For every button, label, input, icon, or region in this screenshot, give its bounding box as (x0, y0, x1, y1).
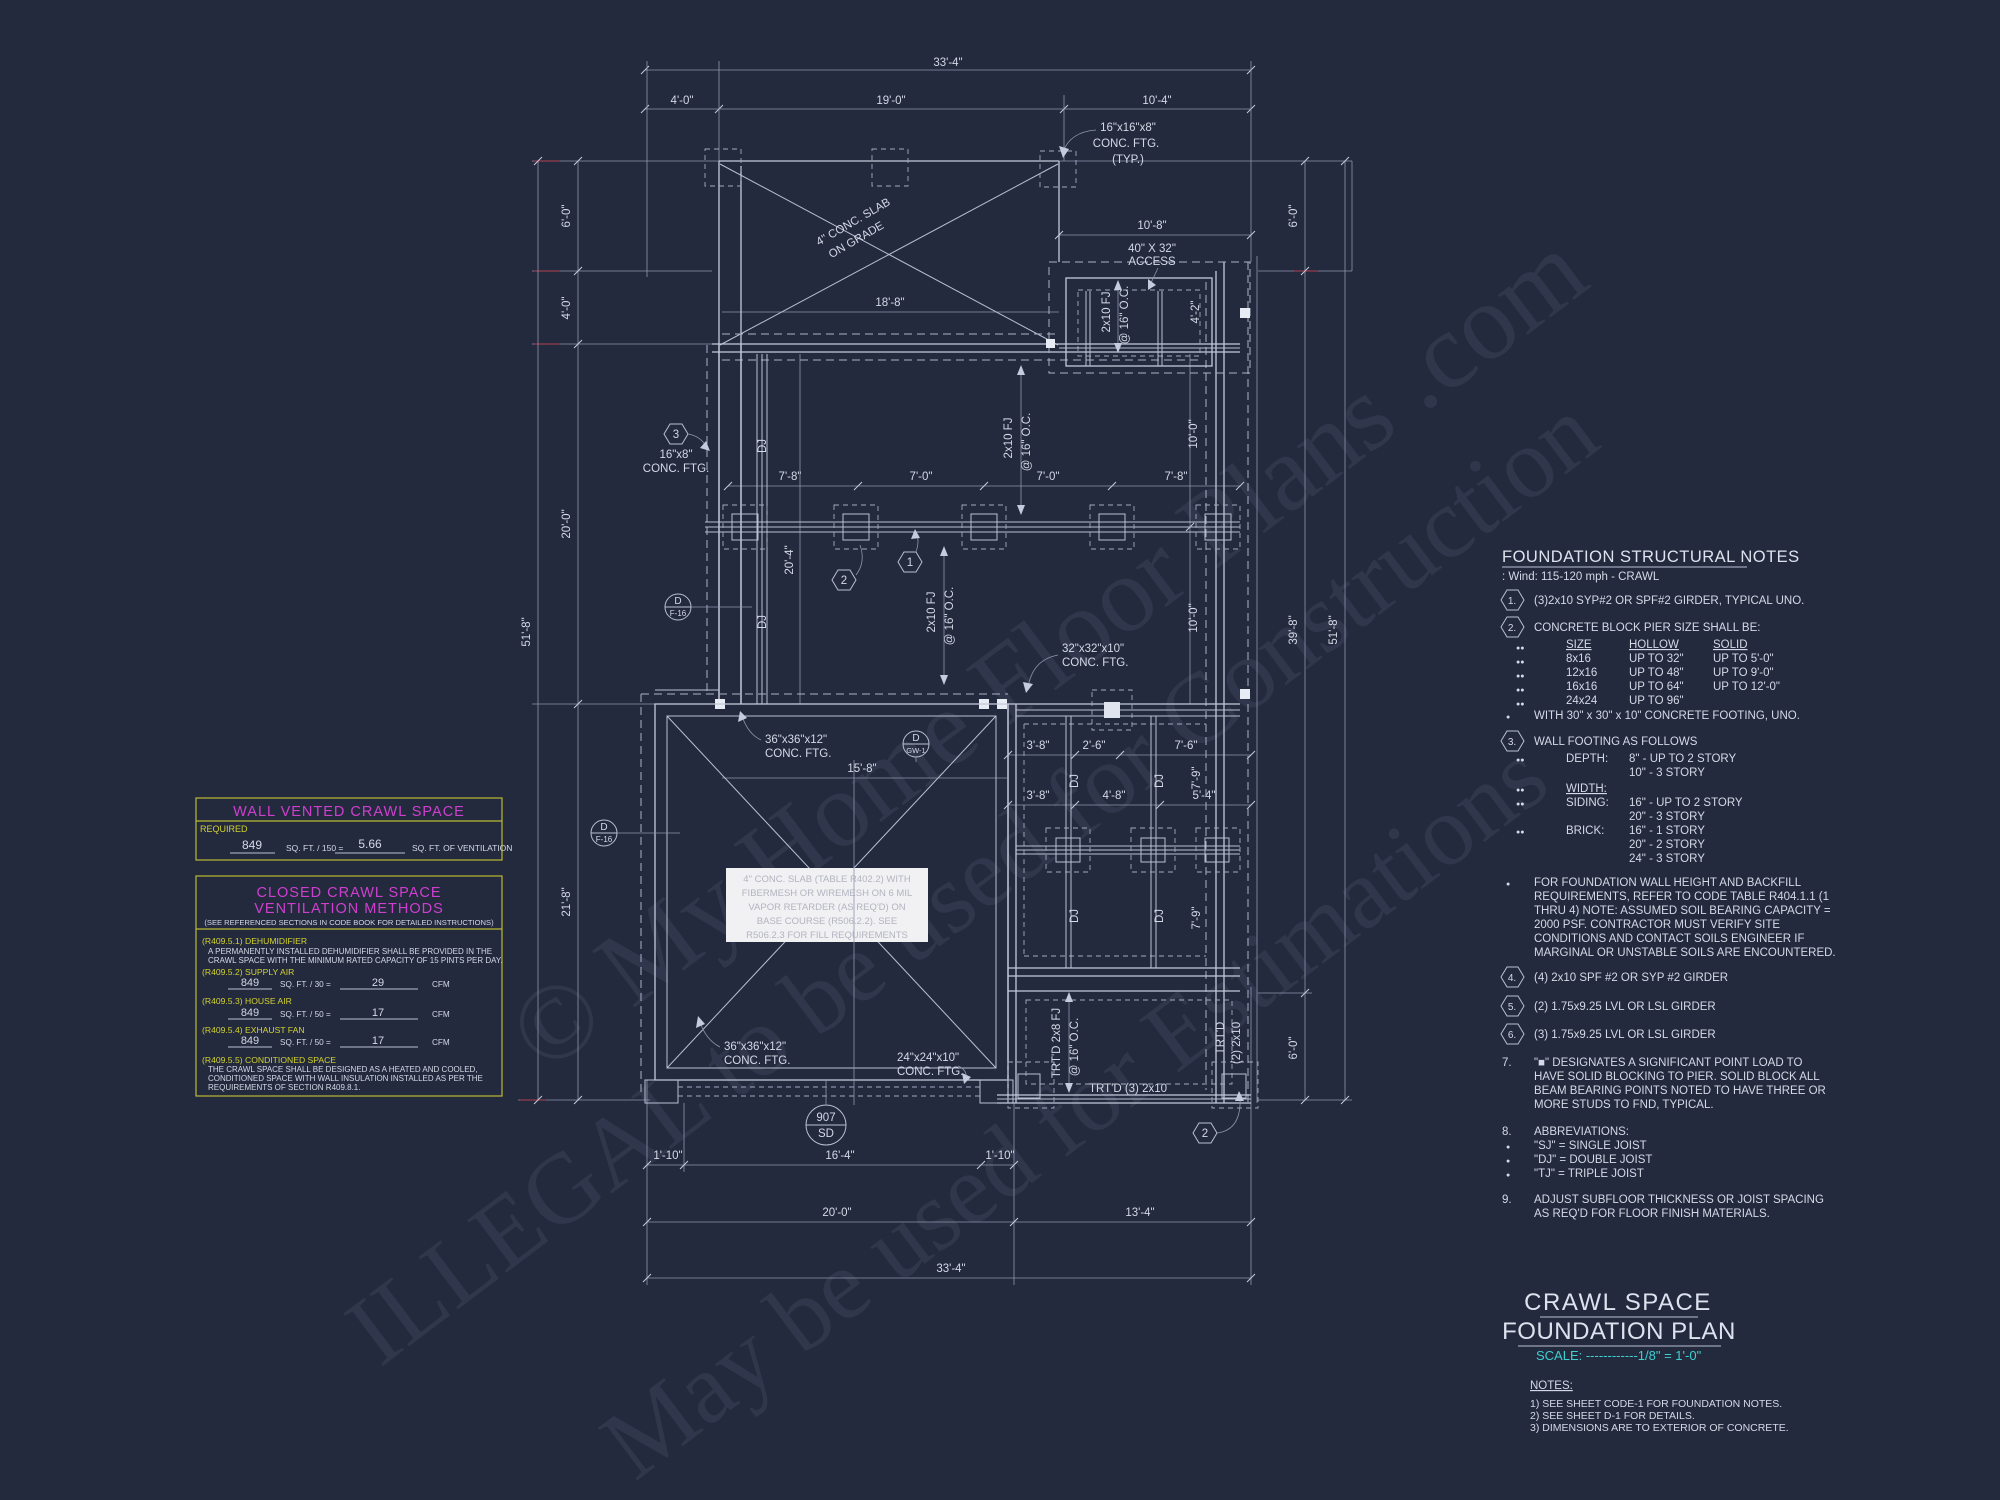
svg-text:THRU 4) NOTE: ASSUMED SOIL BEA: THRU 4) NOTE: ASSUMED SOIL BEARING CAPAC… (1534, 905, 1831, 917)
svg-text:●●: ●● (1516, 687, 1524, 694)
svg-text:15'-8": 15'-8" (847, 763, 876, 775)
svg-text:7'-8": 7'-8" (1165, 471, 1188, 483)
svg-text:TRT'D 2x8 FJ: TRT'D 2x8 FJ (1051, 1008, 1063, 1078)
svg-text:FIBERMESH OR WIREMESH ON 6 MIL: FIBERMESH OR WIREMESH ON 6 MIL (742, 888, 913, 899)
svg-text:TRT'D: TRT'D (1215, 1022, 1227, 1055)
svg-text:●●: ●● (1516, 659, 1524, 666)
svg-text:18'-8": 18'-8" (875, 297, 904, 309)
svg-text:3) DIMENSIONS ARE TO EXTERIOR: 3) DIMENSIONS ARE TO EXTERIOR OF CONCRET… (1530, 1422, 1789, 1434)
svg-text:●●: ●● (1516, 801, 1524, 808)
svg-text:10'-0": 10'-0" (1188, 419, 1200, 448)
svg-text:●●: ●● (1516, 787, 1524, 794)
svg-text:24"x24"x10": 24"x24"x10" (897, 1052, 959, 1064)
svg-text:2: 2 (841, 575, 847, 587)
svg-text:●: ● (1506, 1158, 1510, 1165)
svg-text:@ 16" O.C.: @ 16" O.C. (1069, 1018, 1081, 1077)
svg-text:●●: ●● (1516, 829, 1524, 836)
svg-text:●: ● (1506, 714, 1510, 721)
svg-text:REQUIRED: REQUIRED (200, 824, 248, 834)
svg-text:DJ: DJ (757, 439, 769, 453)
svg-text:HAVE SOLID BLOCKING TO PIER.: HAVE SOLID BLOCKING TO PIER. SOLID BLOCK… (1534, 1071, 1820, 1083)
svg-text:51'-8": 51'-8" (521, 617, 533, 646)
svg-text:36"x36"x12": 36"x36"x12" (724, 1041, 786, 1053)
svg-text:51'-8": 51'-8" (1328, 615, 1340, 644)
svg-text:●●: ●● (1516, 701, 1524, 708)
svg-text:ADJUST SUBFLOOR THICKNESS OR J: ADJUST SUBFLOOR THICKNESS OR JOIST SPACI… (1534, 1194, 1824, 1206)
svg-text:SQ. FT. / 30 =: SQ. FT. / 30 = (280, 980, 331, 989)
svg-text:5.66: 5.66 (358, 837, 382, 851)
svg-text:SQ. FT. OF VENTILATION: SQ. FT. OF VENTILATION (412, 843, 512, 853)
svg-text:16'-4": 16'-4" (825, 1150, 854, 1162)
svg-text:: Wind: 115-120 mph - CRAWL: : Wind: 115-120 mph - CRAWL (1502, 571, 1660, 583)
svg-text:CFM: CFM (432, 980, 450, 989)
svg-text:GW-1: GW-1 (906, 746, 925, 755)
svg-text:CONCRETE BLOCK PIER SIZE SHALL: CONCRETE BLOCK PIER SIZE SHALL BE: (1534, 622, 1760, 634)
svg-text:FOR FOUNDATION WALL HEIGHT AND: FOR FOUNDATION WALL HEIGHT AND BACKFILL (1534, 877, 1802, 889)
svg-text:16"x8": 16"x8" (659, 449, 692, 461)
svg-text:29: 29 (372, 977, 384, 989)
svg-text:FOUNDATION STRUCTURAL NOTES: FOUNDATION STRUCTURAL NOTES (1502, 548, 1800, 566)
svg-text:2: 2 (1202, 1128, 1208, 1140)
svg-text:AS REQ'D FOR FLOOR FINISH MATE: AS REQ'D FOR FLOOR FINISH MATERIALS. (1534, 1208, 1770, 1220)
svg-text:CFM: CFM (432, 1038, 450, 1047)
svg-text:WITH 30" x 30" x 10" CONCRETE: WITH 30" x 30" x 10" CONCRETE FOOTING, U… (1534, 710, 1800, 722)
svg-text:UP TO 32": UP TO 32" (1629, 653, 1684, 665)
svg-text:16"x16"x8": 16"x16"x8" (1100, 122, 1156, 134)
svg-text:UP TO 64": UP TO 64" (1629, 681, 1684, 693)
svg-text:WALL VENTED CRAWL SPACE: WALL VENTED CRAWL SPACE (233, 804, 465, 820)
svg-text:6'-0": 6'-0" (1288, 1037, 1300, 1060)
svg-text:849: 849 (241, 1007, 259, 1019)
svg-text:BRICK:: BRICK: (1566, 825, 1604, 837)
svg-text:3'-8": 3'-8" (1027, 740, 1050, 752)
svg-text:3.: 3. (1508, 737, 1516, 748)
svg-text:●: ● (1506, 881, 1510, 888)
svg-text:MARGINAL OR UNSTABLE SOILS ARE: MARGINAL OR UNSTABLE SOILS ARE ENCOUNTER… (1534, 947, 1836, 959)
svg-text:CFM: CFM (432, 1010, 450, 1019)
svg-text:(R409.5.4) EXHAUST FAN: (R409.5.4) EXHAUST FAN (202, 1025, 305, 1035)
svg-text:UP TO 48": UP TO 48" (1629, 667, 1684, 679)
svg-text:19'-0": 19'-0" (876, 95, 905, 107)
svg-text:17: 17 (372, 1035, 384, 1047)
svg-text:33'-4": 33'-4" (936, 1263, 965, 1275)
svg-text:2) SEE SHEET D-1 FOR DETAILS.: 2) SEE SHEET D-1 FOR DETAILS. (1530, 1410, 1695, 1422)
svg-text:6.: 6. (1508, 1030, 1516, 1041)
svg-text:20'-4": 20'-4" (784, 545, 796, 574)
svg-text:(R409.5.1) DEHUMIDIFIER: (R409.5.1) DEHUMIDIFIER (202, 936, 307, 946)
svg-text:●●: ●● (1516, 673, 1524, 680)
svg-text:●: ● (1506, 1172, 1510, 1179)
svg-text:16x16: 16x16 (1566, 681, 1597, 693)
svg-text:2x10 FJ: 2x10 FJ (926, 592, 938, 633)
svg-text:CONC. FTG.: CONC. FTG. (1093, 138, 1159, 150)
svg-text:F-16: F-16 (670, 609, 687, 618)
svg-text:THE CRAWL SPACE SHALL BE DESIG: THE CRAWL SPACE SHALL BE DESIGNED AS A H… (208, 1065, 478, 1074)
svg-text:12x16: 12x16 (1566, 667, 1597, 679)
svg-text:2'-6": 2'-6" (1083, 740, 1106, 752)
svg-text:24" - 3 STORY: 24" - 3 STORY (1629, 853, 1705, 865)
svg-text:F-16: F-16 (596, 835, 613, 844)
svg-text:SCALE: ------------1/8" = 1'-0: SCALE: ------------1/8" = 1'-0" (1536, 1348, 1702, 1363)
svg-text:ABBREVIATIONS:: ABBREVIATIONS: (1534, 1126, 1629, 1138)
svg-text:DEPTH:: DEPTH: (1566, 753, 1608, 765)
svg-text:TRT'D (3) 2x10: TRT'D (3) 2x10 (1089, 1083, 1167, 1095)
svg-text:CONC. FTG.: CONC. FTG. (724, 1055, 790, 1067)
svg-text:32"x32"x10": 32"x32"x10" (1062, 643, 1124, 655)
svg-text:10'-8": 10'-8" (1137, 220, 1166, 232)
svg-text:BEAM BEARING POINTS NOTED TO H: BEAM BEARING POINTS NOTED TO HAVE THREE … (1534, 1085, 1826, 1097)
svg-text:33'-4": 33'-4" (933, 57, 962, 69)
svg-text:CRAWL SPACE WITH THE MINIMUM R: CRAWL SPACE WITH THE MINIMUM RATED CAPAC… (208, 956, 502, 965)
svg-text:SOLID: SOLID (1713, 639, 1748, 651)
svg-text:D: D (912, 733, 919, 744)
svg-text:21'-8": 21'-8" (561, 887, 573, 916)
svg-text:7'-0": 7'-0" (910, 471, 933, 483)
svg-text:849: 849 (241, 1035, 259, 1047)
svg-text:CONC. FTG.: CONC. FTG. (765, 748, 831, 760)
svg-text:1'-10": 1'-10" (985, 1150, 1014, 1162)
svg-text:REQUIREMENTS OF SECTION R409.8: REQUIREMENTS OF SECTION R409.8.1. (208, 1083, 360, 1092)
svg-text:MORE STUDS TO FND, TYPICAL.: MORE STUDS TO FND, TYPICAL. (1534, 1099, 1714, 1111)
svg-text:1.: 1. (1508, 596, 1516, 607)
svg-text:6'-0": 6'-0" (1288, 205, 1300, 228)
svg-text:4'-0": 4'-0" (561, 297, 573, 320)
svg-text:CLOSED CRAWL SPACE: CLOSED CRAWL SPACE (256, 885, 441, 901)
svg-text:SQ. FT. / 150 =: SQ. FT. / 150 = (286, 843, 343, 853)
svg-text:"■" DESIGNATES A SIGNIFICANT P: "■" DESIGNATES A SIGNIFICANT POINT LOAD … (1534, 1057, 1802, 1069)
svg-text:DJ: DJ (1154, 774, 1166, 788)
svg-text:CONDITIONS AND CONTACT SOILS E: CONDITIONS AND CONTACT SOILS ENGINEER IF (1534, 933, 1805, 945)
svg-text:REQUIREMENTS, REFER TO CODE TA: REQUIREMENTS, REFER TO CODE TABLE R404.1… (1534, 891, 1829, 903)
svg-text:(2) 1.75x9.25 LVL OR LSL GIRDE: (2) 1.75x9.25 LVL OR LSL GIRDER (1534, 1001, 1716, 1013)
svg-text:3'-8": 3'-8" (1027, 790, 1050, 802)
svg-text:(R409.5.5) CONDITIONED SPACE: (R409.5.5) CONDITIONED SPACE (202, 1055, 336, 1065)
svg-text:●: ● (1506, 1144, 1510, 1151)
svg-text:(2) 2x10: (2) 2x10 (1231, 1022, 1243, 1064)
svg-text:20'-0": 20'-0" (822, 1207, 851, 1219)
svg-text:@ 16" O.C.: @ 16" O.C. (1021, 413, 1033, 472)
svg-text:4" CONC. SLAB (TABLE R402.2) W: 4" CONC. SLAB (TABLE R402.2) WITH (743, 874, 911, 885)
svg-text:UP TO 5'-0": UP TO 5'-0" (1713, 653, 1774, 665)
svg-text:20" - 2 STORY: 20" - 2 STORY (1629, 839, 1705, 851)
svg-text:(TYP.): (TYP.) (1112, 154, 1144, 166)
svg-text:7'-8": 7'-8" (779, 471, 802, 483)
svg-text:ACCESS: ACCESS (1128, 256, 1176, 268)
svg-text:9.: 9. (1502, 1194, 1512, 1206)
svg-text:SQ. FT. / 50 =: SQ. FT. / 50 = (280, 1010, 331, 1019)
svg-text:(4) 2x10 SPF #2 OR SYP #2 GIRD: (4) 2x10 SPF #2 OR SYP #2 GIRDER (1534, 972, 1728, 984)
svg-text:2x10 FJ: 2x10 FJ (1101, 292, 1113, 333)
svg-text:16" - 1 STORY: 16" - 1 STORY (1629, 825, 1705, 837)
svg-text:7'-9": 7'-9" (1191, 907, 1203, 930)
svg-text:●●: ●● (1516, 757, 1524, 764)
svg-text:849: 849 (241, 977, 259, 989)
svg-text:WIDTH:: WIDTH: (1566, 783, 1607, 795)
svg-text:@ 16" O.C.: @ 16" O.C. (1119, 286, 1131, 345)
svg-text:(SEE REFERENCED SECTIONS IN CO: (SEE REFERENCED SECTIONS IN CODE BOOK FO… (204, 918, 494, 927)
svg-text:CONC. FTG.: CONC. FTG. (897, 1066, 963, 1078)
svg-text:"DJ" = DOUBLE JOIST: "DJ" = DOUBLE JOIST (1534, 1154, 1652, 1166)
svg-text:HOLLOW: HOLLOW (1629, 639, 1679, 651)
svg-text:CRAWL SPACE: CRAWL SPACE (1524, 1289, 1712, 1316)
svg-text:20'-0": 20'-0" (561, 509, 573, 538)
svg-text:40" X 32": 40" X 32" (1128, 243, 1176, 255)
svg-text:7'-6": 7'-6" (1175, 740, 1198, 752)
svg-text:7'-0": 7'-0" (1037, 471, 1060, 483)
svg-text:"TJ" = TRIPLE JOIST: "TJ" = TRIPLE JOIST (1534, 1168, 1644, 1180)
svg-text:DJ: DJ (1069, 774, 1081, 788)
svg-text:NOTES:: NOTES: (1530, 1380, 1573, 1392)
svg-text:6'-0": 6'-0" (561, 205, 573, 228)
svg-text:DJ: DJ (1069, 909, 1081, 923)
svg-text:849: 849 (242, 838, 262, 852)
svg-text:7.: 7. (1502, 1057, 1512, 1069)
svg-text:FOUNDATION PLAN: FOUNDATION PLAN (1502, 1318, 1736, 1345)
svg-text:4.: 4. (1508, 973, 1516, 984)
svg-text:24x24: 24x24 (1566, 695, 1598, 707)
svg-text:BASE COURSE (R506.2.2). SEE: BASE COURSE (R506.2.2). SEE (757, 916, 897, 927)
svg-text:D: D (600, 822, 607, 833)
svg-text:CONC. FTG.: CONC. FTG. (643, 463, 709, 475)
svg-text:7'-9": 7'-9" (1191, 767, 1203, 790)
svg-text:2000 PSF. CONTRACTOR MUST VERI: 2000 PSF. CONTRACTOR MUST VERIFY SITE (1534, 919, 1780, 931)
svg-text:1: 1 (907, 557, 913, 569)
svg-text:SD: SD (818, 1128, 834, 1140)
svg-text:5.: 5. (1508, 1002, 1516, 1013)
svg-text:8.: 8. (1502, 1126, 1512, 1138)
svg-text:4'-8": 4'-8" (1103, 790, 1126, 802)
svg-text:10'-0": 10'-0" (1188, 603, 1200, 632)
svg-text:"SJ" = SINGLE JOIST: "SJ" = SINGLE JOIST (1534, 1140, 1647, 1152)
svg-text:13'-4": 13'-4" (1125, 1207, 1154, 1219)
svg-text:2.: 2. (1508, 623, 1516, 634)
svg-text:4'-0": 4'-0" (671, 95, 694, 107)
svg-text:DJ: DJ (1154, 909, 1166, 923)
svg-text:5'-4": 5'-4" (1193, 790, 1216, 802)
svg-text:39'-8": 39'-8" (1288, 615, 1300, 644)
svg-text:CONDITIONED SPACE WITH WALL IN: CONDITIONED SPACE WITH WALL INSULATION I… (208, 1074, 483, 1083)
svg-text:●●: ●● (1516, 645, 1524, 652)
svg-text:WALL FOOTING AS FOLLOWS: WALL FOOTING AS FOLLOWS (1534, 736, 1698, 748)
svg-text:UP TO 12'-0": UP TO 12'-0" (1713, 681, 1780, 693)
svg-text:8x16: 8x16 (1566, 653, 1591, 665)
svg-text:A PERMANENTLY INSTALLED DEHUMI: A PERMANENTLY INSTALLED DEHUMIDIFIER SHA… (208, 947, 492, 956)
svg-text:UP TO 96": UP TO 96" (1629, 695, 1684, 707)
svg-text:2x10 FJ: 2x10 FJ (1003, 418, 1015, 459)
svg-text:CONC. FTG.: CONC. FTG. (1062, 657, 1128, 669)
svg-text:D: D (674, 596, 681, 607)
svg-text:(3)2x10 SYP#2 OR SPF#2 GIRDER,: (3)2x10 SYP#2 OR SPF#2 GIRDER, TYPICAL U… (1534, 595, 1804, 607)
svg-text:SIZE: SIZE (1566, 639, 1592, 651)
svg-text:SIDING:: SIDING: (1566, 797, 1609, 809)
svg-text:20" - 3 STORY: 20" - 3 STORY (1629, 811, 1705, 823)
svg-text:36"x36"x12": 36"x36"x12" (765, 734, 827, 746)
svg-text:(R409.5.2) SUPPLY AIR: (R409.5.2) SUPPLY AIR (202, 967, 294, 977)
svg-text:UP TO 9'-0": UP TO 9'-0" (1713, 667, 1774, 679)
svg-text:R506.2.3 FOR FILL REQUIREMENTS: R506.2.3 FOR FILL REQUIREMENTS (746, 930, 908, 941)
svg-text:17: 17 (372, 1007, 384, 1019)
svg-text:VAPOR RETARDER (AS REQ'D) ON: VAPOR RETARDER (AS REQ'D) ON (748, 902, 905, 913)
svg-text:1'-10": 1'-10" (653, 1150, 682, 1162)
svg-text:16" - UP TO 2 STORY: 16" - UP TO 2 STORY (1629, 797, 1743, 809)
svg-text:1) SEE SHEET CODE-1 FOR FOUND: 1) SEE SHEET CODE-1 FOR FOUNDATION NOTES… (1530, 1398, 1782, 1410)
svg-text:@ 16" O.C.: @ 16" O.C. (944, 587, 956, 646)
svg-text:(R409.5.3) HOUSE AIR: (R409.5.3) HOUSE AIR (202, 996, 292, 1006)
svg-text:VENTILATION METHODS: VENTILATION METHODS (254, 901, 444, 917)
svg-text:907: 907 (816, 1112, 835, 1124)
svg-text:10" - 3 STORY: 10" - 3 STORY (1629, 767, 1705, 779)
svg-text:3: 3 (673, 429, 679, 441)
svg-text:(3) 1.75x9.25 LVL OR LSL GIRDE: (3) 1.75x9.25 LVL OR LSL GIRDER (1534, 1029, 1716, 1041)
svg-text:SQ. FT. / 50 =: SQ. FT. / 50 = (280, 1038, 331, 1047)
svg-text:DJ: DJ (757, 615, 769, 629)
svg-text:10'-4": 10'-4" (1142, 95, 1171, 107)
svg-text:8" - UP TO 2 STORY: 8" - UP TO 2 STORY (1629, 753, 1737, 765)
